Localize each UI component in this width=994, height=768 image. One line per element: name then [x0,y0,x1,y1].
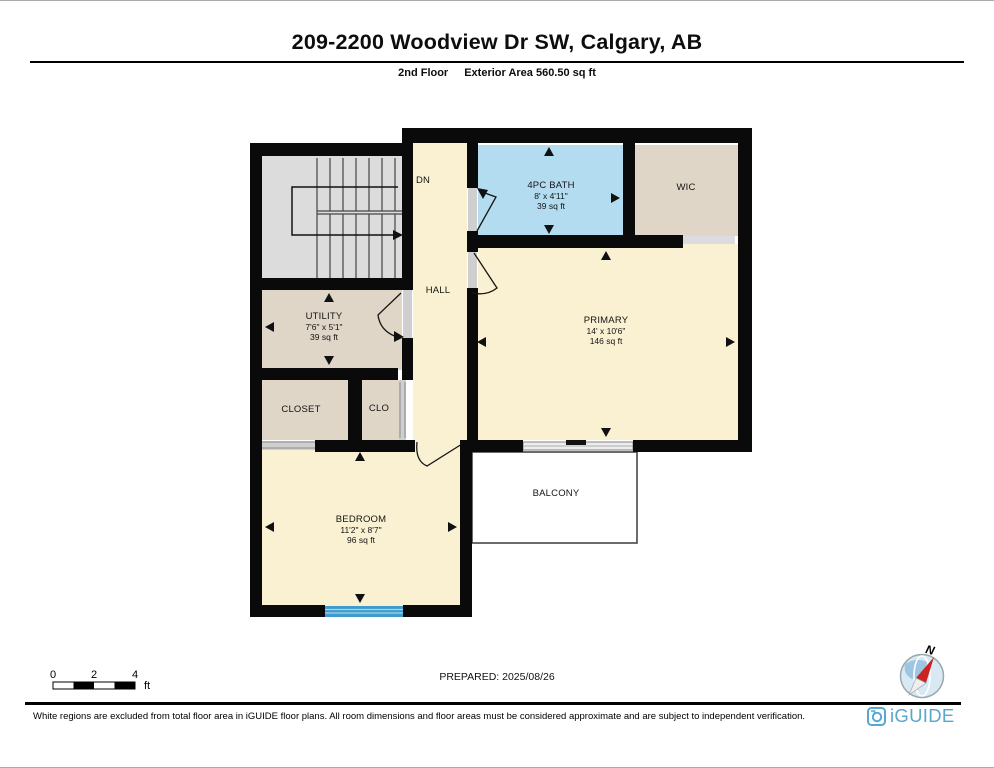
label-utility: UTILITY 7'6" x 5'1" 39 sq ft [305,312,342,342]
iguide-logo: iGUIDE [866,705,955,727]
stairs-area [262,156,402,278]
footer-rule [25,702,961,705]
iguide-logo-text: iGUIDE [890,705,955,727]
bedroom-window [325,606,403,617]
label-closet: CLOSET [281,405,320,415]
label-bedroom: BEDROOM 11'2" x 8'7" 96 sq ft [336,515,387,545]
label-hall: HALL [426,286,451,296]
scale-bar [53,682,135,689]
prepared-date: PREPARED: 2025/08/26 [0,671,994,683]
label-wic: WIC [676,183,695,193]
hall-area [413,143,467,450]
label-clo: CLO [369,404,389,414]
label-dn: DN [416,176,430,186]
primary-door-opening [468,252,477,288]
slider-handle [566,440,586,445]
disclaimer-text: White regions are excluded from total fl… [33,711,813,722]
floorplan-page: 209-2200 Woodview Dr SW, Calgary, AB 2nd… [0,0,994,768]
label-balcony: BALCONY [533,489,580,499]
utility-door-opening [403,290,412,338]
label-primary: PRIMARY 14' x 10'6" 146 sq ft [584,316,629,346]
floorplan-svg [0,0,994,768]
wic-opening [683,236,735,244]
label-bath: 4PC BATH 8' x 4'11" 39 sq ft [527,181,574,211]
bath-door-opening [468,188,477,231]
balcony-slider [523,440,633,450]
